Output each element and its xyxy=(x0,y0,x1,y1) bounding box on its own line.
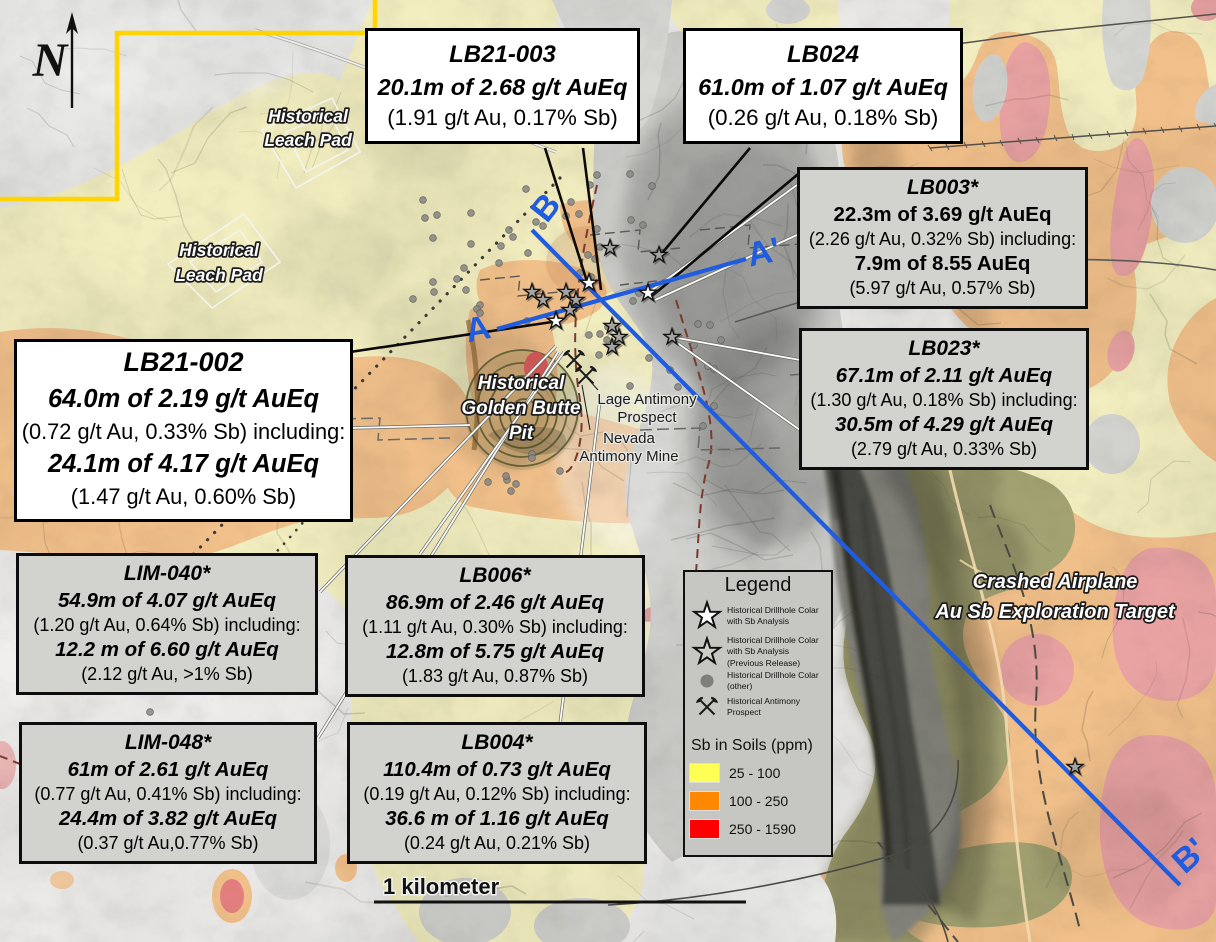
svg-text:Historical: Historical xyxy=(268,106,349,126)
svg-text:Historical: Historical xyxy=(179,240,260,260)
svg-text:Antimony Mine: Antimony Mine xyxy=(579,448,678,465)
svg-text:Leach Pad: Leach Pad xyxy=(264,130,352,150)
svg-text:Pit: Pit xyxy=(509,423,534,444)
svg-text:Historical: Historical xyxy=(478,373,565,394)
svg-text:Au Sb Exploration Target: Au Sb Exploration Target xyxy=(934,601,1176,623)
svg-text:1 kilometer: 1 kilometer xyxy=(383,874,500,899)
svg-text:Golden Butte: Golden Butte xyxy=(461,398,581,419)
svg-text:N: N xyxy=(32,34,70,87)
svg-text:Lage Antimony: Lage Antimony xyxy=(597,391,697,408)
svg-text:Prospect: Prospect xyxy=(617,409,677,426)
svg-text:Nevada: Nevada xyxy=(603,430,655,447)
svg-text:Leach Pad: Leach Pad xyxy=(175,265,263,285)
svg-text:Crashed Airplane: Crashed Airplane xyxy=(973,571,1138,593)
